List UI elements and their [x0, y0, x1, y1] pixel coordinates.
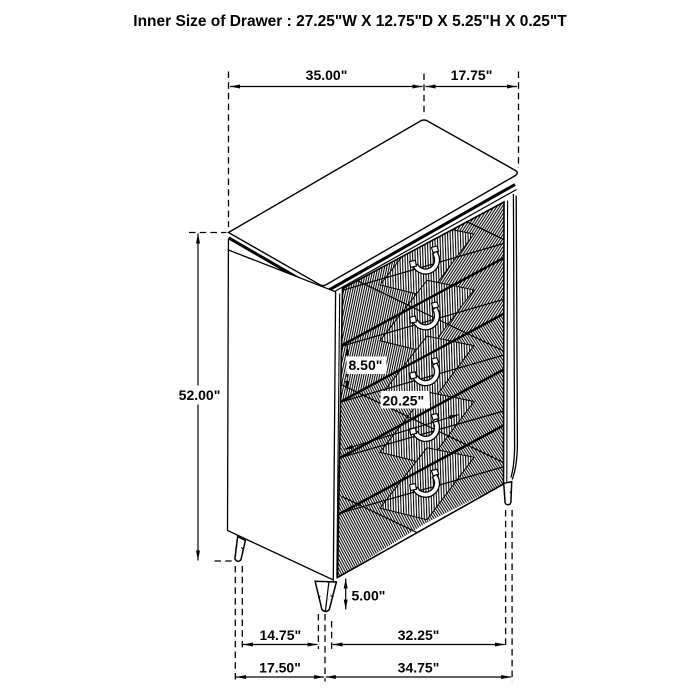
svg-text:17.50": 17.50" [259, 660, 301, 676]
svg-text:17.75": 17.75" [451, 67, 493, 83]
svg-text:52.00": 52.00" [179, 387, 221, 403]
svg-text:8.50": 8.50" [349, 357, 383, 373]
svg-text:5.00": 5.00" [352, 588, 386, 604]
svg-text:34.75": 34.75" [398, 660, 440, 676]
svg-text:20.25": 20.25" [383, 393, 425, 409]
svg-text:14.75": 14.75" [259, 627, 301, 643]
svg-text:35.00": 35.00" [306, 67, 348, 83]
svg-text:Inner Size of Drawer : 27.25"W: Inner Size of Drawer : 27.25"W X 12.75"D… [133, 13, 567, 30]
svg-text:32.25": 32.25" [398, 627, 440, 643]
